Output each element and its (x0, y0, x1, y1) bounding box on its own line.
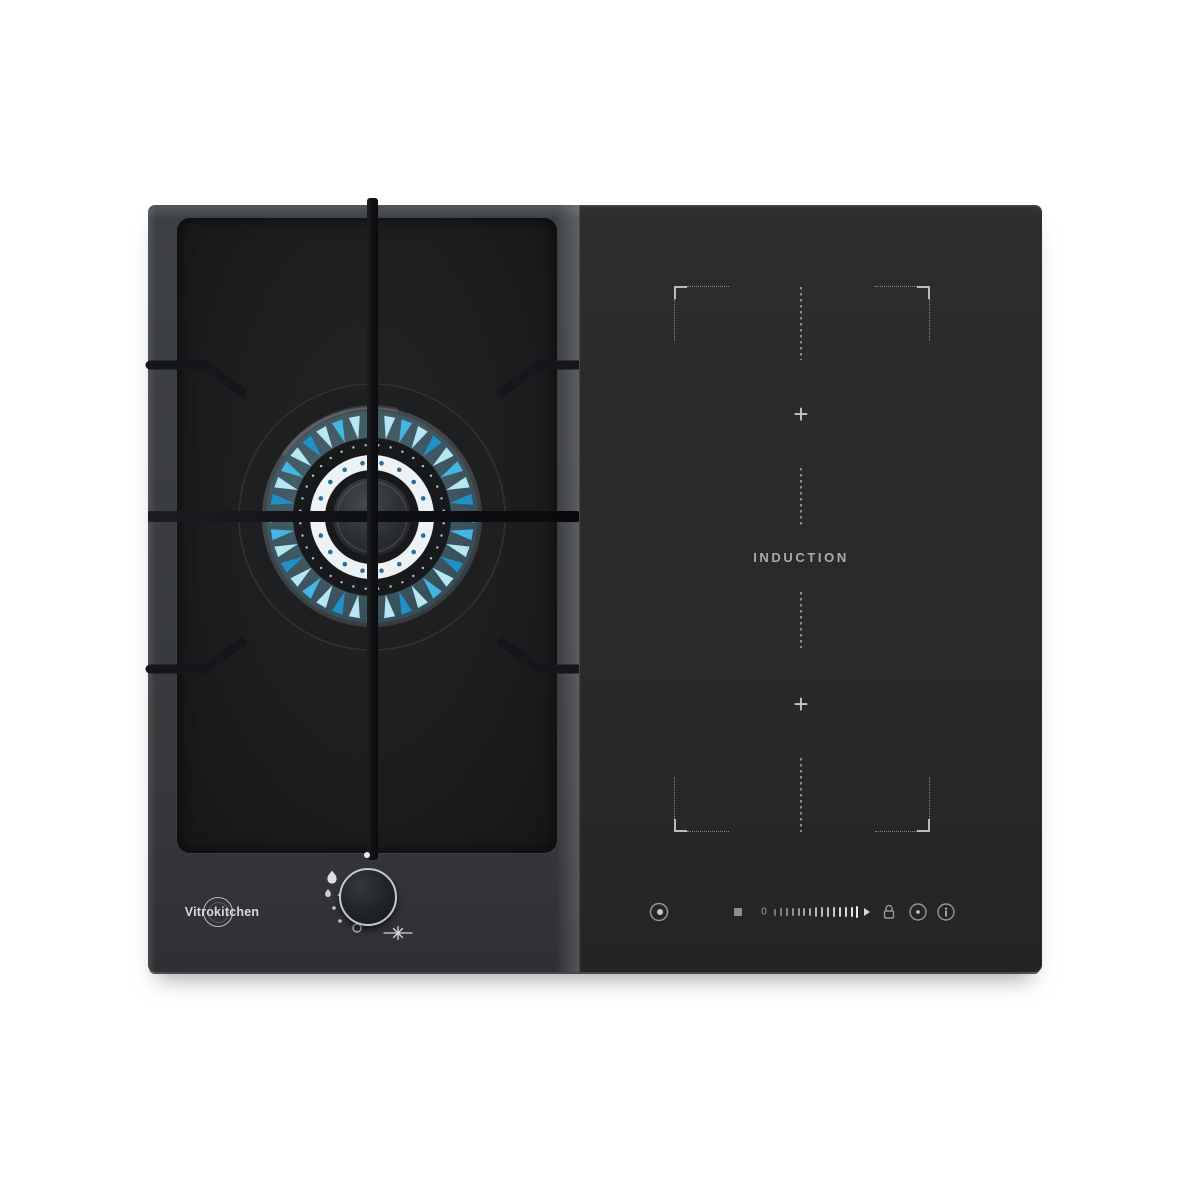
induction-section: + + INDUCTION 0 (579, 205, 1042, 972)
zone-bracket-top-left (674, 286, 730, 342)
slider-zero-label: 0 (761, 907, 767, 918)
flame-large-icon (327, 871, 336, 884)
hob: Vitrokitchen + + (148, 205, 1041, 972)
gas-section: Vitrokitchen (148, 205, 580, 972)
zone-bracket-top-right (874, 286, 930, 342)
induction-label: INDUCTION (701, 550, 901, 565)
gas-burner-knob[interactable] (339, 868, 397, 926)
flame-small-icon (325, 889, 331, 897)
grate-arm-top-right (502, 365, 579, 392)
power-slider[interactable] (774, 905, 862, 919)
lock-icon[interactable] (877, 900, 901, 924)
grate-arm-bottom-right (502, 642, 579, 669)
grate-horizontal-bar (148, 511, 579, 522)
brand-name: Vitrokitchen (185, 905, 259, 919)
info-icon[interactable] (934, 900, 958, 924)
grate-vertical-bar (367, 198, 378, 860)
brand-logo: Vitrokitchen (166, 900, 278, 924)
zone-divider-dash (800, 287, 802, 360)
ignition-spark-icon (384, 927, 412, 940)
off-position-dot (364, 852, 370, 858)
stop-square-icon[interactable] (726, 900, 750, 924)
zone-bracket-bottom-right (874, 776, 930, 832)
product-photo: Vitrokitchen + + (0, 0, 1200, 1200)
timer-dot-icon[interactable] (906, 900, 930, 924)
simmer-circle-icon (353, 924, 361, 932)
zone-divider-dash (800, 468, 802, 525)
power-icon[interactable] (647, 900, 671, 924)
grate-arm-bottom-left (150, 642, 242, 669)
zone-divider-dash (800, 758, 802, 832)
position-dot (332, 906, 336, 910)
grate-arm-top-left (150, 365, 242, 392)
zone-center-marker-bottom: + (786, 690, 816, 720)
zone-center-marker-top: + (786, 400, 816, 430)
zone-divider-dash (800, 592, 802, 648)
slider-arrow-icon (864, 908, 870, 916)
zone-bracket-bottom-left (674, 776, 730, 832)
position-dot (338, 919, 342, 923)
gas-burner-graphic (148, 205, 579, 972)
